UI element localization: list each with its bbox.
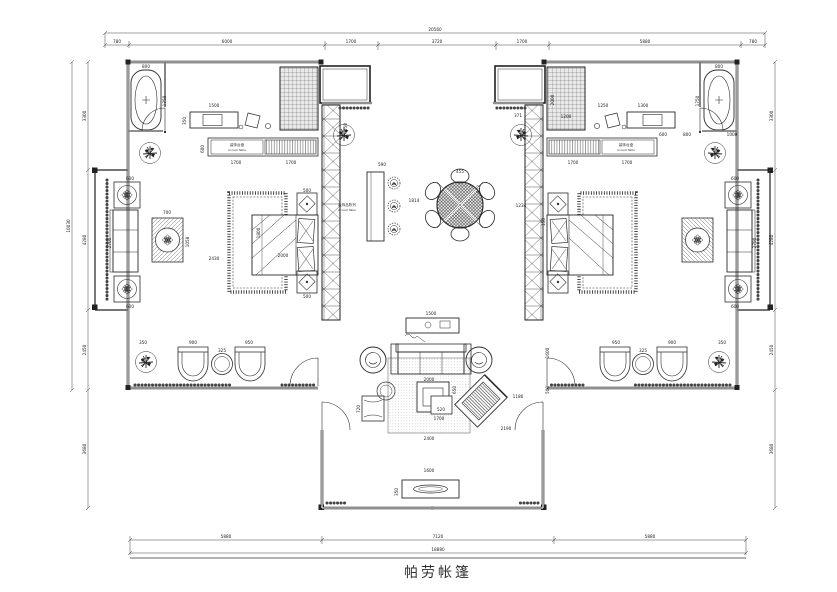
dim-label: 5880: [645, 534, 656, 539]
dim-label: 325: [218, 348, 226, 353]
tub-chair: [178, 347, 208, 381]
floorplan-sheet: 20560 780 6000 1700 3720 1700 5880 780 5…: [0, 0, 837, 592]
dim-label: 800: [715, 64, 723, 69]
dimension-text: 20560 780 6000 1700 3720 1700 5880 780 5…: [66, 27, 774, 552]
dimension-lines: [70, 31, 777, 555]
lattice-screen: [322, 105, 340, 320]
porch-bench: [110, 210, 138, 272]
dim-label: 1700: [231, 160, 242, 165]
dim-label: 2700: [107, 237, 112, 248]
dim-label: 6000: [222, 39, 233, 44]
dim-label: 900: [189, 340, 197, 345]
dim-label: 325: [639, 348, 647, 353]
dim-label: 812: [476, 185, 481, 193]
tv-console: [402, 480, 459, 498]
bathtub: [131, 70, 161, 130]
console-table: [405, 318, 459, 342]
dim-label: 650: [452, 386, 457, 394]
dim-label: 2700: [752, 237, 757, 248]
dim-label: 1700: [346, 39, 357, 44]
dim-label: 4280: [82, 234, 87, 245]
side-table: [212, 354, 233, 375]
dim-label: 20560: [428, 27, 442, 32]
dim-label: 455: [456, 169, 464, 174]
dim-label: 350: [139, 340, 147, 345]
dim-label: 600: [126, 304, 134, 309]
dim-label: 350: [182, 117, 187, 125]
dim-label: 10030: [66, 219, 71, 233]
tub-chair: [235, 347, 265, 381]
dim-label: 900: [668, 340, 676, 345]
dim-label: 2400: [424, 436, 435, 441]
right-wing-mirror: [431, 60, 773, 511]
dim-label: 1700: [434, 416, 445, 421]
dim-label: 800: [683, 132, 691, 137]
round-table: [152, 218, 183, 262]
dim-label: 2450: [769, 344, 774, 355]
coffee-table: [417, 382, 452, 414]
entry-planter: [320, 66, 370, 103]
accent-cabinet-label-cn: 装饰台盘: [619, 142, 634, 147]
dim-label: 2430: [209, 256, 220, 261]
dim-label: 500: [303, 294, 311, 299]
dim-label: 2190: [501, 426, 512, 431]
dim-label: 1750: [162, 95, 167, 106]
dim-label: 2000: [424, 377, 435, 382]
dim-label: 780: [113, 39, 121, 44]
plant: [140, 143, 161, 164]
floorplan-drawing: 20560 780 6000 1700 3720 1700 5880 780 5…: [0, 0, 837, 592]
drawing-title: 帕劳帐篷: [404, 565, 472, 581]
dim-label: 2000: [550, 94, 555, 105]
dim-label: 950: [245, 340, 253, 345]
dim-label: 3680: [769, 443, 774, 454]
dim-label: 700: [163, 210, 171, 215]
dim-label: 600: [200, 145, 205, 153]
dim-label: 5880: [640, 39, 651, 44]
dim-label: 1058: [185, 236, 190, 247]
dim-label: 4280: [769, 234, 774, 245]
dim-label: 3300: [769, 110, 774, 121]
dim-label: 1186: [513, 394, 524, 399]
dim-label: 1000: [727, 132, 738, 137]
dim-label: 2000: [278, 253, 289, 258]
accent-cabinet-label-en: Accent Table: [617, 148, 635, 152]
dim-label: 3680: [82, 443, 87, 454]
accent-cabinet-label-en: Accent Table: [228, 148, 246, 152]
dim-label: 1814: [409, 198, 420, 203]
dim-label: 1500: [426, 311, 437, 316]
dim-label: 720: [356, 405, 361, 413]
living-door-arc: [322, 402, 350, 430]
wardrobe: [280, 67, 318, 130]
dim-label: 3720: [432, 39, 443, 44]
plant: [136, 352, 157, 373]
accent-cabinet-label-cn: 装饰台盘: [230, 142, 245, 147]
dim-label: 950: [612, 340, 620, 345]
dim-label: 590: [378, 162, 386, 167]
dim-label: 600: [731, 176, 739, 181]
dim-label: 150: [541, 218, 546, 226]
dim-label: 1700: [517, 39, 528, 44]
dressing-desk: [190, 112, 271, 129]
dim-label: 1700: [286, 160, 297, 165]
dim-label: 600: [659, 132, 667, 137]
dim-label: 1700: [568, 160, 579, 165]
dim-label: 2450: [82, 344, 87, 355]
bar-label-en: Accent Table: [338, 208, 356, 212]
dim-label: 520: [437, 407, 445, 412]
dim-label: 1800: [256, 227, 261, 238]
dim-label: 600: [126, 176, 134, 181]
dim-label: 500: [303, 188, 311, 193]
dim-label: 600: [731, 304, 739, 309]
dim-label: 1300: [638, 103, 649, 108]
dim-label: 5880: [221, 534, 232, 539]
accent-cabinet: [208, 138, 318, 156]
dim-label: 1700: [622, 160, 633, 165]
bed-area: [229, 193, 318, 292]
dim-label: 1500: [209, 103, 220, 108]
dim-label: 550: [343, 123, 348, 131]
dim-label: 350: [718, 340, 726, 345]
bathroom-door-arc: [142, 108, 165, 131]
dim-label: 1600: [545, 347, 550, 358]
nightstand: [297, 193, 317, 215]
dim-label: 780: [749, 39, 757, 44]
bench: [362, 396, 384, 421]
dim-label: 1250: [598, 103, 609, 108]
bar-label-cn: 装饰品陈列: [338, 202, 356, 207]
dim-label: 350: [394, 488, 399, 496]
decor-squiggle: [405, 334, 425, 342]
wing-door-arc: [290, 358, 318, 386]
dim-label: 371: [514, 113, 522, 118]
dim-label: 800: [142, 64, 150, 69]
dim-label: 1234: [516, 203, 527, 208]
dim-label: 500: [545, 386, 550, 394]
dim-label: 1750: [695, 95, 700, 106]
dim-label: 7120: [433, 534, 444, 539]
dim-label: 1200: [561, 114, 572, 119]
dim-label: 3300: [82, 110, 87, 121]
dim-label: 18880: [431, 547, 445, 552]
dim-label: 1600: [424, 468, 435, 473]
living-walls: [322, 430, 434, 508]
bar-counter: [367, 172, 384, 241]
